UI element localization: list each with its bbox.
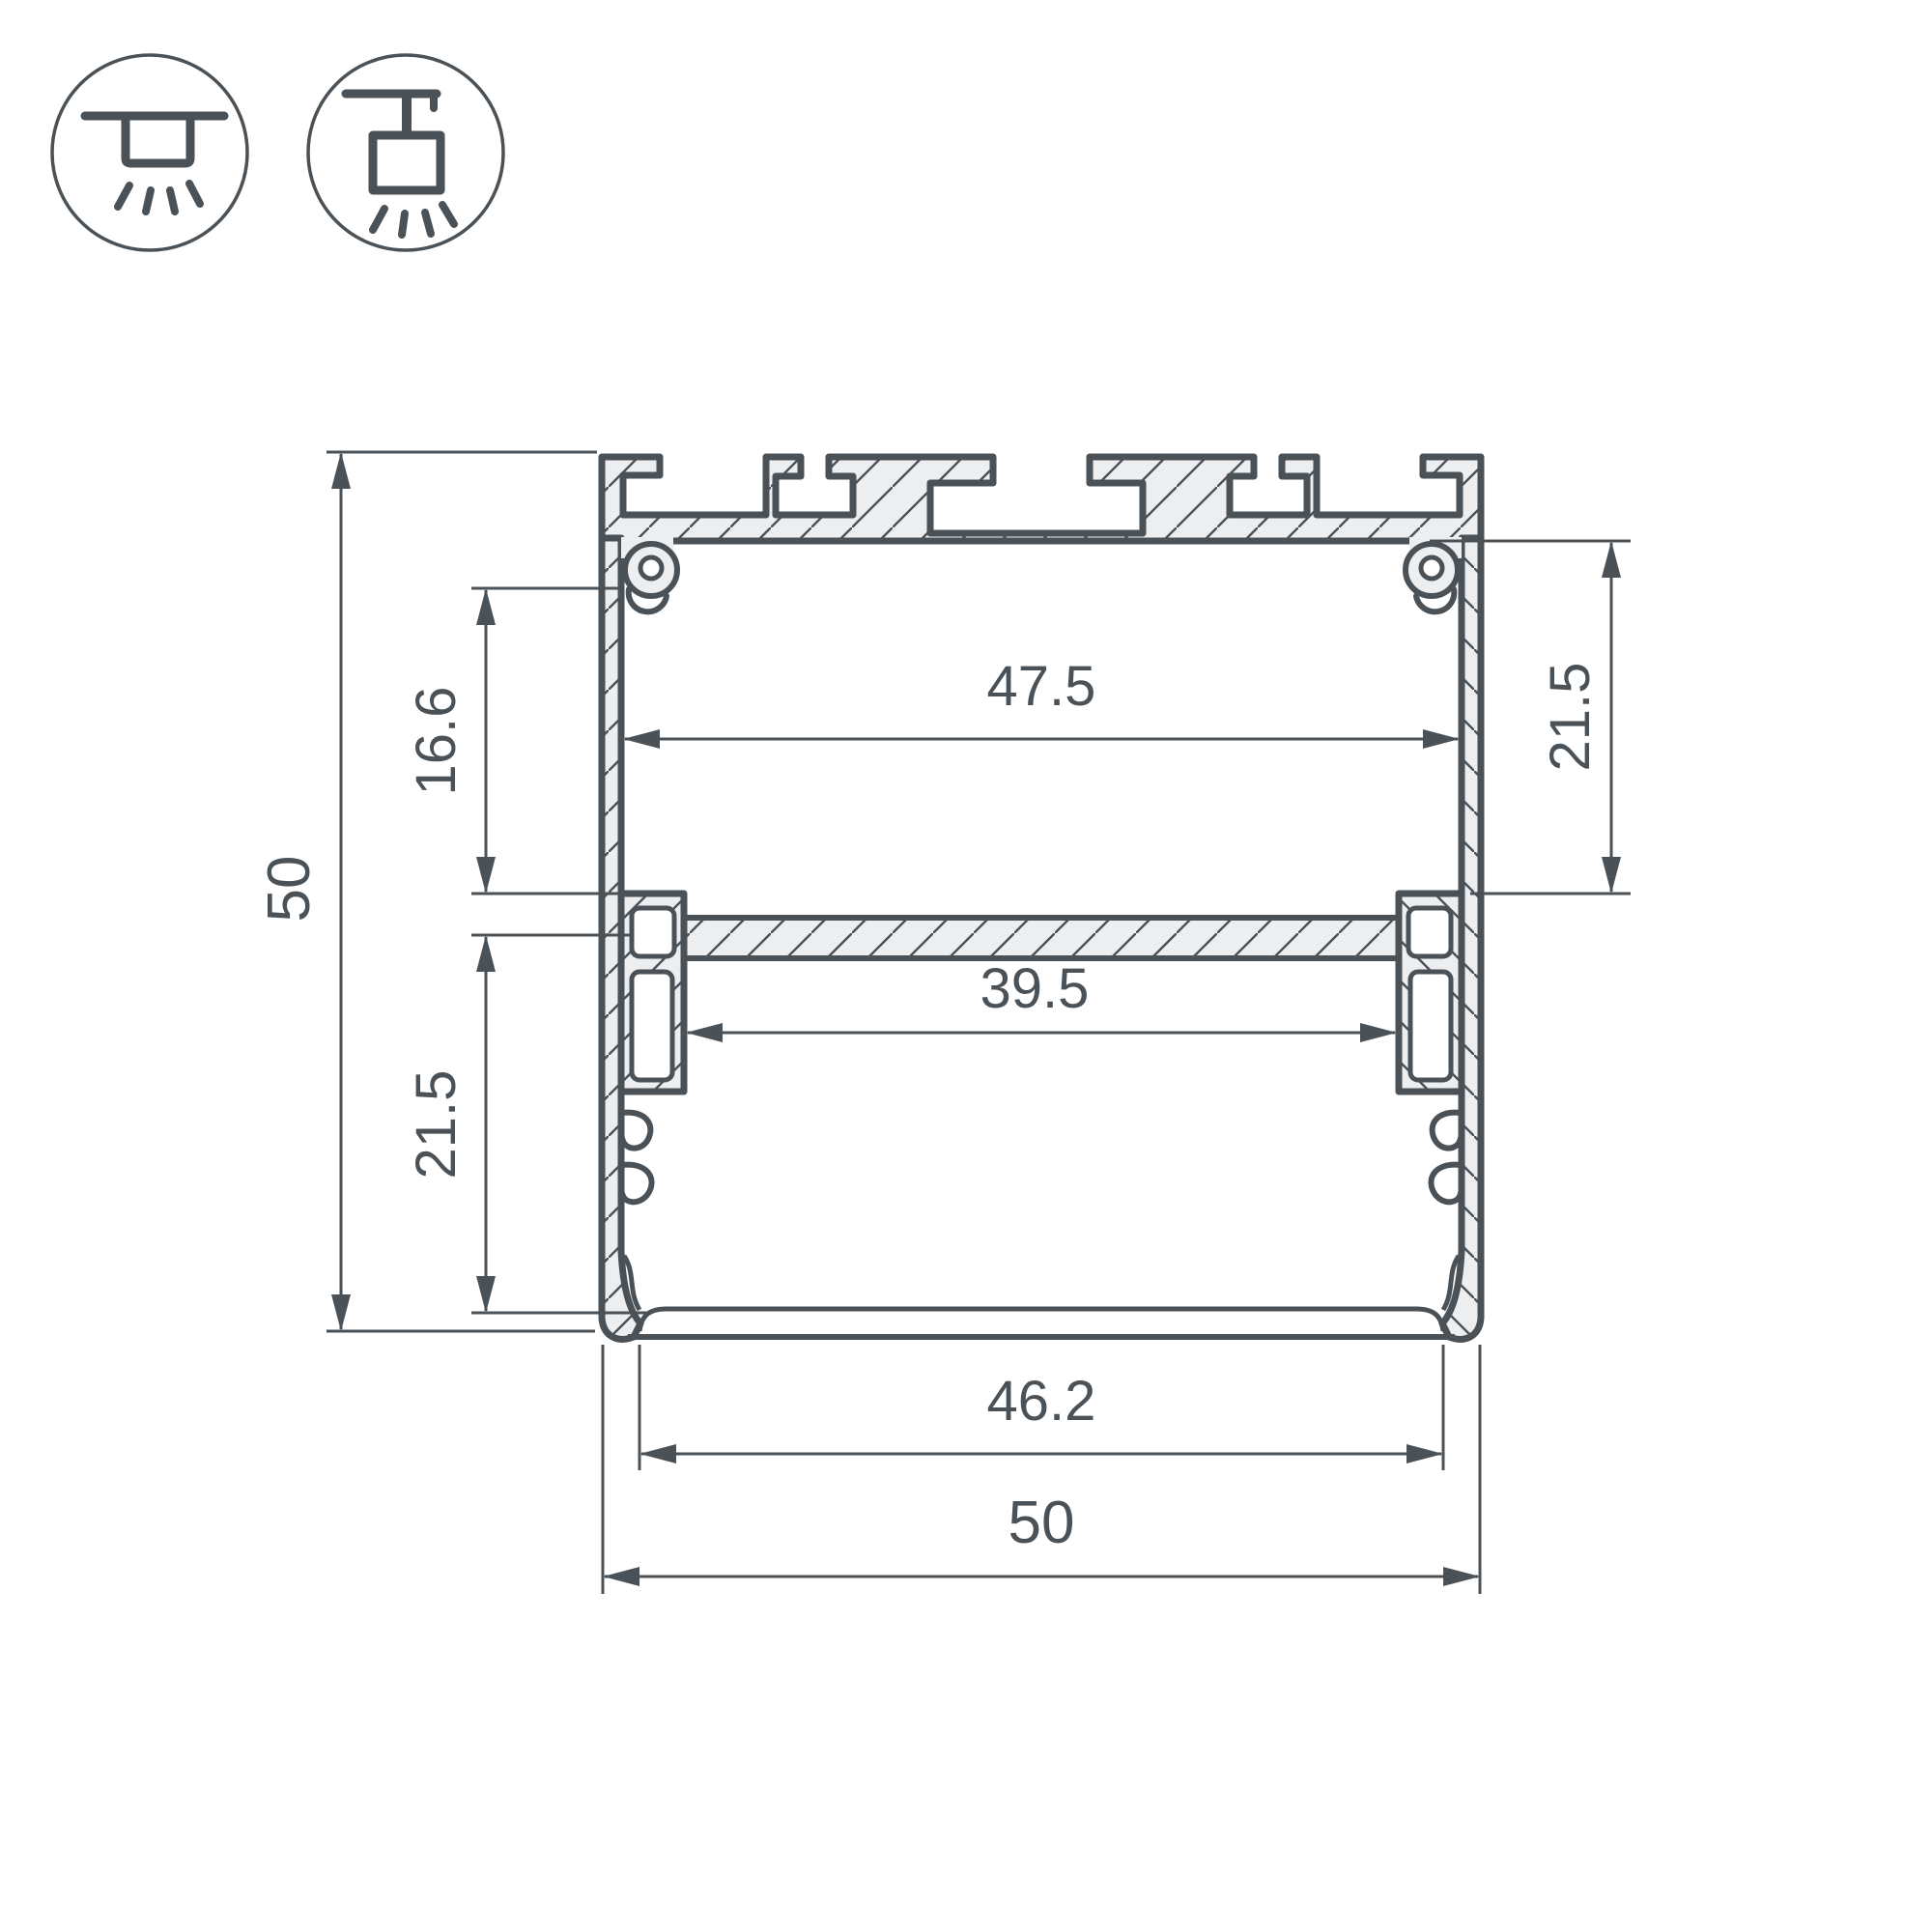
dim-label-overall-width: 50: [1009, 1490, 1075, 1556]
dim-bottom-opening-width: 46.2: [639, 1345, 1443, 1470]
dim-label-right-inner-height: 21.5: [1539, 663, 1602, 772]
profile-dimension-drawing: 50 16.6 21.5 21.5: [0, 0, 1932, 1932]
dim-label-upper-inner-height: 16.6: [405, 687, 468, 796]
drawing-svg: 50 16.6 21.5 21.5: [0, 0, 1932, 1932]
dim-upper-inner-width: 47.5: [623, 655, 1460, 749]
dim-label-overall-height: 50: [256, 856, 323, 923]
dim-label-bottom-opening-width: 46.2: [987, 1370, 1096, 1433]
profile-cross-section: [602, 457, 1481, 1339]
dim-lower-inner-width: 39.5: [686, 957, 1397, 1051]
dim-overall-height: 50: [256, 452, 597, 1331]
dim-label-upper-inner-width: 47.5: [987, 655, 1096, 718]
diffuser-cover: [639, 1309, 1443, 1331]
dim-label-lower-inner-height: 21.5: [405, 1070, 468, 1179]
surface-mount-icon: [52, 55, 247, 250]
pendant-mount-icon: [308, 55, 503, 250]
dim-label-lower-inner-width: 39.5: [980, 957, 1090, 1020]
